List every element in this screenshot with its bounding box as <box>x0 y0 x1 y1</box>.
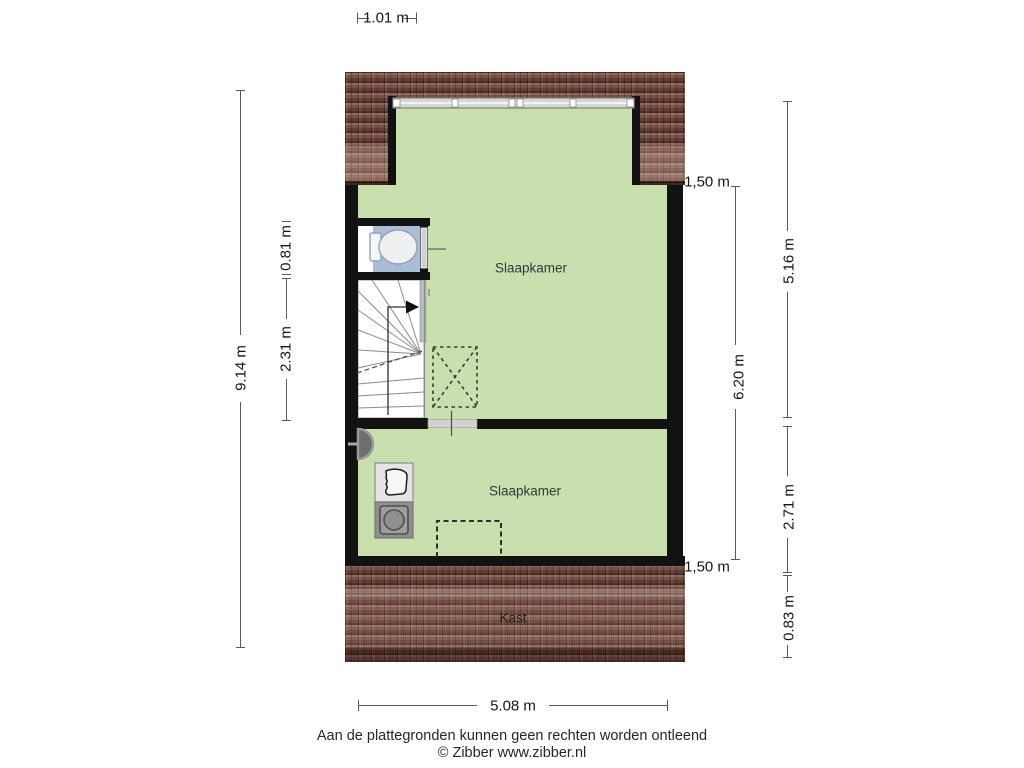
wall-middle-left <box>345 418 428 429</box>
wall-right <box>667 185 683 565</box>
wall-left <box>345 185 358 565</box>
sink-icon <box>375 463 413 502</box>
dim-interior-height-right: 6.20 m <box>731 354 748 400</box>
room-label-closet: Kast <box>499 611 526 626</box>
wall-dormer-right <box>632 96 640 185</box>
room-label-bedroom-lower: Slaapkamer <box>489 484 561 499</box>
dim-offset-top-right: 1,50 m <box>684 174 730 191</box>
toilet-icon <box>370 230 417 264</box>
dim-toilet-height: 0.81 m <box>278 225 295 271</box>
dim-offset-bottom-right: 1,50 m <box>684 559 730 576</box>
footer-credit: © Zibber www.zibber.nl <box>0 745 1024 761</box>
dim-total-height: 9.14 m <box>233 345 250 391</box>
wall-dormer-left <box>388 96 396 185</box>
floorplan-page: { "plan": { "rooms": { "bedroom_upper": … <box>0 0 1024 768</box>
footer-disclaimer: Aan de plattegronden kunnen geen rechten… <box>0 728 1024 744</box>
washing-machine-icon <box>375 502 413 538</box>
dim-stair-height: 2.31 m <box>278 326 295 372</box>
toilet-door <box>421 228 427 268</box>
floorplan-drawing <box>0 0 1024 768</box>
wall-toilet-bottom <box>345 272 430 280</box>
dim-roof-bottom-height: 0.83 m <box>781 595 798 641</box>
wall-middle-right <box>477 419 667 429</box>
dim-dormer-height-right: 5.16 m <box>781 238 798 284</box>
room-label-bedroom-upper: Slaapkamer <box>495 261 567 276</box>
dim-bottom-width: 5.08 m <box>490 698 536 715</box>
wall-bottom <box>345 556 685 566</box>
window-band <box>393 98 634 108</box>
stair-balustrade <box>420 280 426 342</box>
wall-toilet-top <box>345 218 430 226</box>
dormer-floor <box>396 98 632 185</box>
dim-top-width: 1.01 m <box>363 10 409 27</box>
dim-lower-room-height: 2.71 m <box>781 484 798 530</box>
